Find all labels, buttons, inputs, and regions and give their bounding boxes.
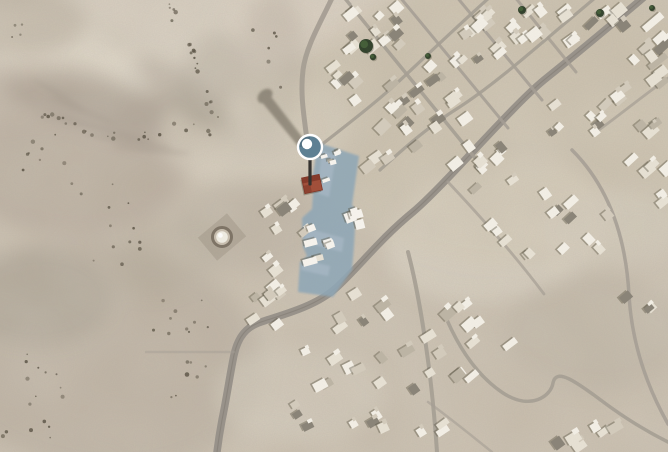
map-pin-marker[interactable] xyxy=(286,119,334,193)
satellite-map-viewport[interactable] xyxy=(0,0,668,452)
pin-center-dot xyxy=(302,138,312,148)
map-features-layer xyxy=(0,0,668,452)
satellite-imagery xyxy=(0,0,668,452)
